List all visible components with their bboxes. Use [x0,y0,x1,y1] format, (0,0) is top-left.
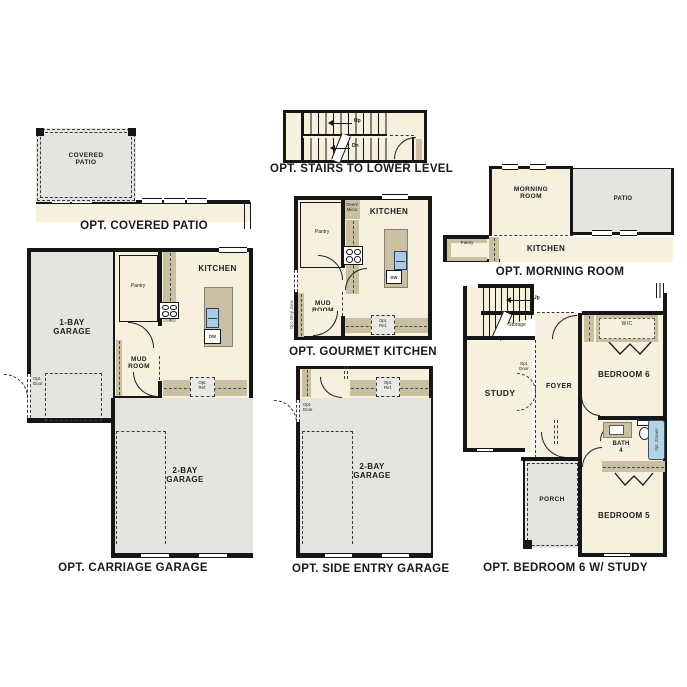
opt-ref-label: Opt. Ref. [373,318,393,328]
window-opening [219,247,247,253]
bedroom5-label: BEDROOM 5 [592,511,656,520]
caption-stairs: OPT. STAIRS TO LOWER LEVEL [270,163,442,175]
wic-closet [596,315,658,342]
kitchen-label: KITCHEN [515,244,577,253]
wall [463,448,525,452]
opt-door-swing-icon [517,392,536,411]
opt-ref-label: Opt. Ref. [192,380,213,390]
wic-label: WIC [610,322,644,328]
opt-door-dashed-zone [45,373,102,421]
wall-cased-strip [416,139,422,160]
wall [412,137,414,161]
pantry-label: Pantry [124,284,152,290]
dashed-line [307,370,308,396]
wall [158,381,162,397]
parking-dashed-zone [116,431,166,544]
garage-door-opening [141,553,169,558]
wall [578,420,582,555]
caption-carriage-garage: OPT. CARRIAGE GARAGE [38,562,228,574]
sink-icon [206,308,219,328]
dashed-opening [390,135,414,136]
drop-zone-strip [298,293,304,337]
wall [463,286,467,452]
garage-door-opening [199,553,227,558]
dashed-opening [159,356,160,380]
window-hatch [656,283,666,298]
up-label: Up [354,119,368,125]
covered-patio-label: COVERED PATIO [58,152,114,167]
sink-divider [208,318,217,319]
opt-drop-zone-label: Opt. Drop Zone [289,292,298,338]
dashed-line [119,341,120,395]
wall [578,313,582,420]
dashed-line [589,316,590,341]
dashed-line [301,294,302,336]
patio-post [128,128,136,136]
dashed-opening [294,270,298,292]
wall-cased-strip [584,315,594,342]
wall [111,398,115,557]
bedroom6-label: BEDROOM 6 [592,370,656,379]
caption-morning-room: OPT. MORNING ROOM [445,266,675,278]
up-arrow-icon [330,123,352,124]
opt-shower-tub: Opt. Shower [648,420,665,460]
floorplan-options-sheet: COVERED PATIO OPT. COVERED PATIO Up Dn O… [0,0,687,687]
stove-icon [159,302,179,319]
stair-treads-up [303,113,387,136]
dishwasher-icon: DW [386,270,402,284]
window-opening [382,194,408,200]
window-opening [187,198,207,204]
dn-arrow-head-icon [327,145,335,151]
caption-gourmet-kitchen: OPT. GOURMET KITCHEN [288,346,438,358]
window-opening [592,230,612,236]
window-opening [530,164,546,170]
dashed-opening [537,312,574,313]
up-arrow-icon [508,300,530,301]
porch-room [523,461,580,548]
garage-door-opening [325,553,352,558]
window-opening [164,198,185,204]
stove-icon [343,246,363,265]
morning-room-label: MORNING ROOM [499,186,563,201]
sink-icon [394,251,407,270]
oven-micro-label: Oven/ Micro [344,202,360,212]
opt-door-dashed-wall [535,340,536,458]
patio-post [36,128,44,136]
opt-door-swing-icon [274,400,297,423]
window-opening [477,448,493,452]
porch-dashed-edge [527,463,578,546]
parking-dashed-zone [302,431,353,544]
wall [27,248,115,252]
dashed-line [603,467,664,468]
wall [296,366,300,398]
two-bay-garage-label: 2-BAY GARAGE [155,466,215,484]
dishwasher-icon: DW [204,329,221,344]
patio-label: PATIO [593,196,653,203]
opt-door-label: Opt. Door [512,361,536,371]
window-opening [604,553,630,557]
window-opening [502,164,518,170]
wall [296,553,433,558]
window-opening [142,198,162,204]
morning-room [489,166,573,236]
caption-covered-patio: OPT. COVERED PATIO [36,220,252,232]
wall-cased-strip [489,237,499,262]
closet-shelf [602,461,665,472]
wall [296,366,433,369]
opt-shower-label: Opt. Shower [654,428,659,451]
sink-divider [396,261,405,262]
porch-post [523,540,532,549]
garage-door-opening [382,553,409,558]
caption-bedroom6-study: OPT. BEDROOM 6 W/ STUDY [468,562,663,574]
window-opening [620,230,637,236]
pantry-label: Pantry [452,240,482,245]
mud-room-label: MUD ROOM [122,356,156,371]
opt-door-label: Opt. Door [303,402,325,412]
dashed-opening [342,292,343,316]
wall-cased-strip [302,369,311,397]
dn-label: Dn [352,144,366,150]
wall [111,553,253,558]
up-arrow-head-icon [325,120,333,126]
opt-door-swing-icon [517,373,536,392]
kitchen-label: KITCHEN [190,264,245,273]
dashed-line [494,238,495,261]
wall [27,248,31,374]
up-label: Up [533,296,547,302]
bifold-doors-icon [614,472,654,488]
up-arrow-head-icon [503,297,511,303]
bifold-doors-icon [608,341,652,356]
one-bay-garage-label: 1-BAY GARAGE [44,318,100,336]
dashed-opening [344,366,348,379]
opt-ref-label: Opt. Ref. [378,380,398,390]
vanity-sink-icon [609,425,624,435]
foyer-label: FOYER [539,383,579,391]
wall [463,336,535,340]
kitchen-label: KITCHEN [362,207,416,216]
storage-label: Storage [499,323,535,329]
opt-door-swing-icon [4,374,28,398]
bath4-label: BATH 4 [607,441,635,455]
two-bay-garage-label: 2-BAY GARAGE [342,462,402,480]
porch-label: PORCH [534,496,570,503]
caption-side-entry-garage: OPT. SIDE ENTRY GARAGE [292,563,442,575]
pantry-label: Pantry [308,230,336,236]
